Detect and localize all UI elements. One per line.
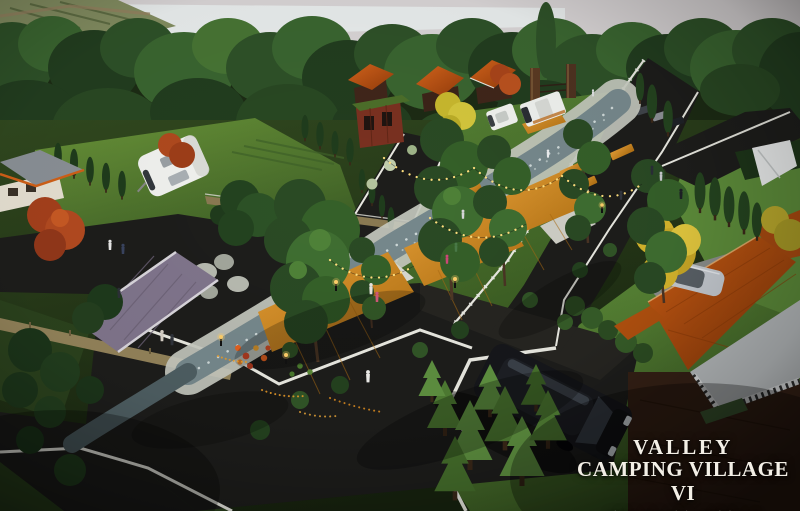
caption: VALLEY CAMPING VILLAGE VI 계곡을 품은 캠핑 · 풍경… (576, 436, 790, 511)
caption-title-line2: CAMPING VILLAGE VI (576, 458, 790, 505)
caption-title-line1: VALLEY (576, 436, 790, 458)
camping-village-render: VALLEY CAMPING VILLAGE VI 계곡을 품은 캠핑 · 풍경… (0, 0, 800, 511)
